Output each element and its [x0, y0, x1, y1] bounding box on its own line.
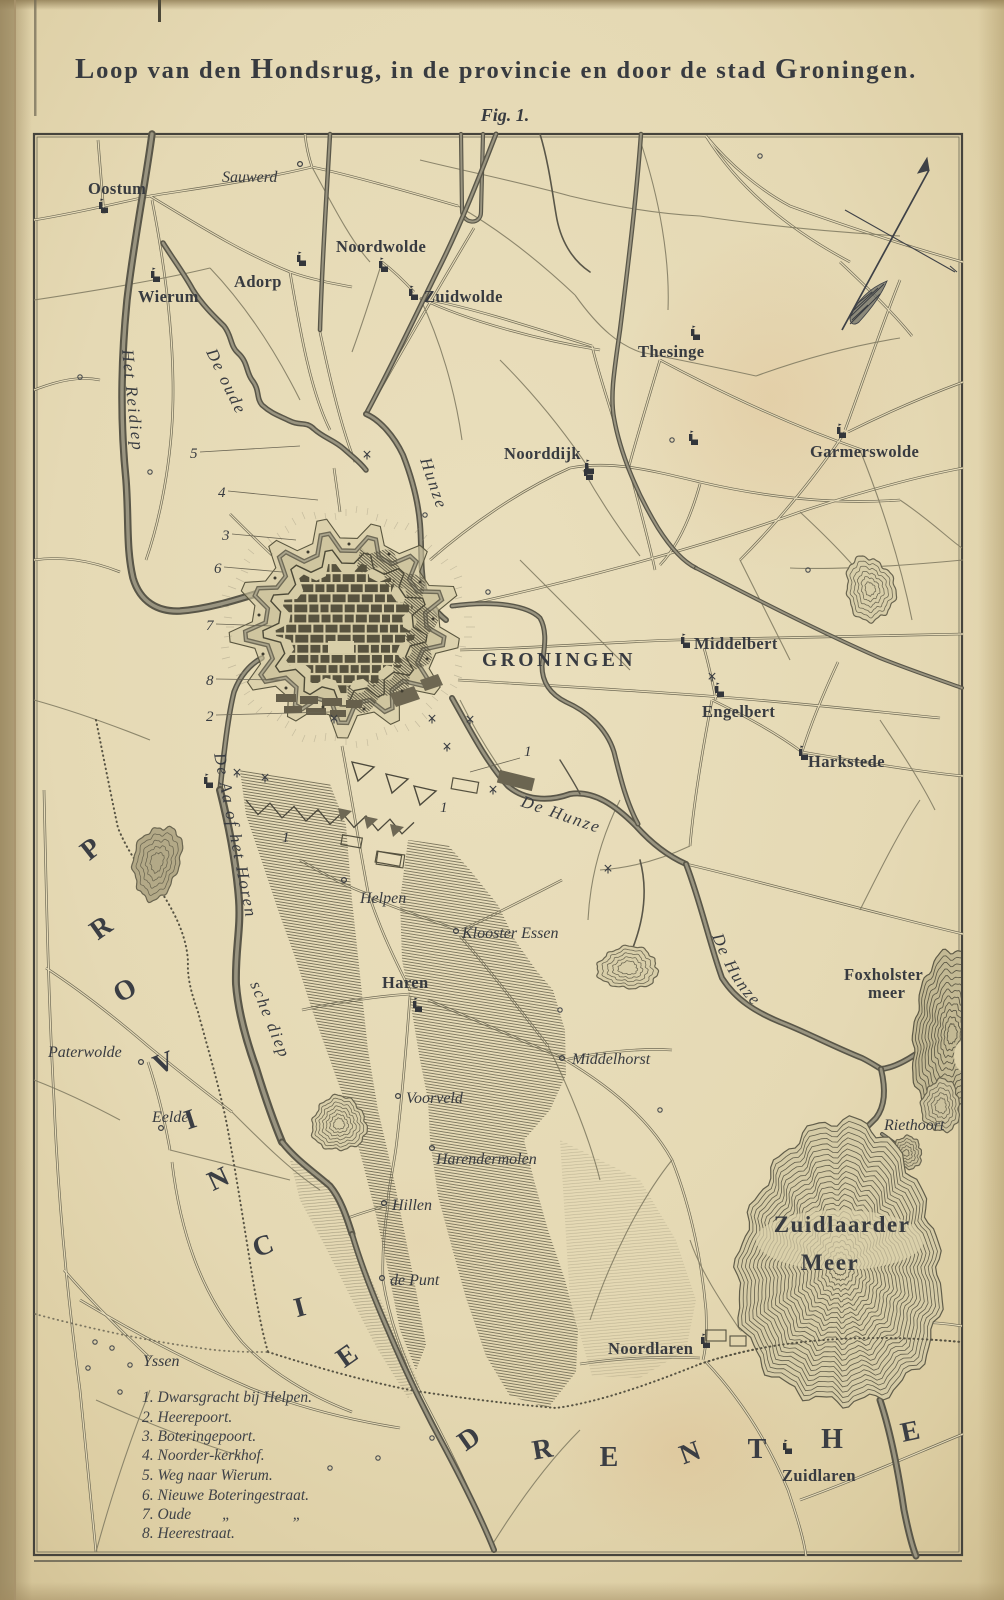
svg-text:Helpen: Helpen	[359, 890, 406, 907]
svg-text:Middelhorst: Middelhorst	[571, 1051, 651, 1068]
svg-text:Zuidlaarder: Zuidlaarder	[774, 1212, 911, 1237]
svg-text:Wierum: Wierum	[138, 287, 199, 306]
svg-text:Hillen: Hillen	[391, 1197, 432, 1214]
svg-text:Sauwerd: Sauwerd	[222, 169, 278, 186]
svg-text:Paterwolde: Paterwolde	[47, 1044, 122, 1061]
svg-text:Voorveld: Voorveld	[406, 1090, 464, 1107]
svg-text:T: T	[748, 1434, 767, 1465]
svg-text:Zuidlaren: Zuidlaren	[782, 1466, 856, 1485]
svg-text:GRONINGEN: GRONINGEN	[482, 650, 636, 671]
svg-text:Klooster Essen: Klooster Essen	[461, 925, 558, 942]
svg-text:Garmerswolde: Garmerswolde	[810, 442, 919, 461]
svg-text:Zuidwolde: Zuidwolde	[424, 287, 503, 306]
svg-text:6. Nieuwe Boteringestraat.: 6. Nieuwe Boteringestraat.	[142, 1487, 309, 1504]
svg-text:2: 2	[206, 709, 214, 725]
svg-text:Yssen: Yssen	[143, 1353, 179, 1370]
svg-text:Harkstede: Harkstede	[808, 752, 885, 771]
svg-text:5: 5	[190, 446, 198, 462]
svg-text:Noordwolde: Noordwolde	[336, 237, 426, 256]
svg-text:Foxholster: Foxholster	[844, 965, 923, 984]
svg-text:Middelbert: Middelbert	[694, 634, 778, 653]
svg-text:Engelbert: Engelbert	[702, 702, 775, 721]
svg-text:Loop van den Hondsrug, in de p: Loop van den Hondsrug, in de provincie e…	[75, 53, 917, 85]
svg-text:4. Noorder-kerkhof.: 4. Noorder-kerkhof.	[142, 1447, 265, 1464]
svg-text:3: 3	[221, 528, 230, 544]
svg-text:Adorp: Adorp	[234, 272, 282, 291]
svg-text:Harendermolen: Harendermolen	[435, 1151, 537, 1168]
svg-text:7. Oude „ „: 7. Oude „ „	[142, 1506, 301, 1523]
svg-text:Meer: Meer	[801, 1250, 859, 1275]
svg-text:Noordlaren: Noordlaren	[608, 1339, 693, 1358]
svg-text:3. Boteringepoort.: 3. Boteringepoort.	[141, 1428, 256, 1445]
svg-text:Eelde: Eelde	[151, 1109, 188, 1126]
svg-text:Haren: Haren	[382, 973, 429, 992]
svg-text:6: 6	[214, 561, 222, 577]
svg-text:5. Weg naar Wierum.: 5. Weg naar Wierum.	[142, 1467, 273, 1484]
svg-text:Oostum: Oostum	[88, 179, 146, 198]
svg-text:1: 1	[440, 800, 448, 816]
svg-text:de Punt: de Punt	[390, 1272, 440, 1289]
svg-text:8: 8	[206, 673, 214, 689]
svg-text:Riethoort: Riethoort	[883, 1117, 945, 1134]
svg-text:1: 1	[282, 830, 290, 846]
svg-text:H: H	[821, 1424, 843, 1455]
svg-text:1: 1	[524, 744, 532, 760]
svg-text:4: 4	[218, 485, 226, 501]
svg-text:1. Dwarsgracht bij Helpen.: 1. Dwarsgracht bij Helpen.	[142, 1389, 312, 1406]
svg-text:2. Heerepoort.: 2. Heerepoort.	[142, 1409, 232, 1426]
svg-text:meer: meer	[868, 983, 905, 1002]
svg-text:Noorddijk: Noorddijk	[504, 444, 581, 463]
svg-text:Fig. 1.: Fig. 1.	[480, 105, 530, 125]
svg-text:8. Heerestraat.: 8. Heerestraat.	[142, 1525, 235, 1542]
svg-text:E: E	[600, 1442, 619, 1473]
svg-text:Thesinge: Thesinge	[638, 342, 704, 361]
